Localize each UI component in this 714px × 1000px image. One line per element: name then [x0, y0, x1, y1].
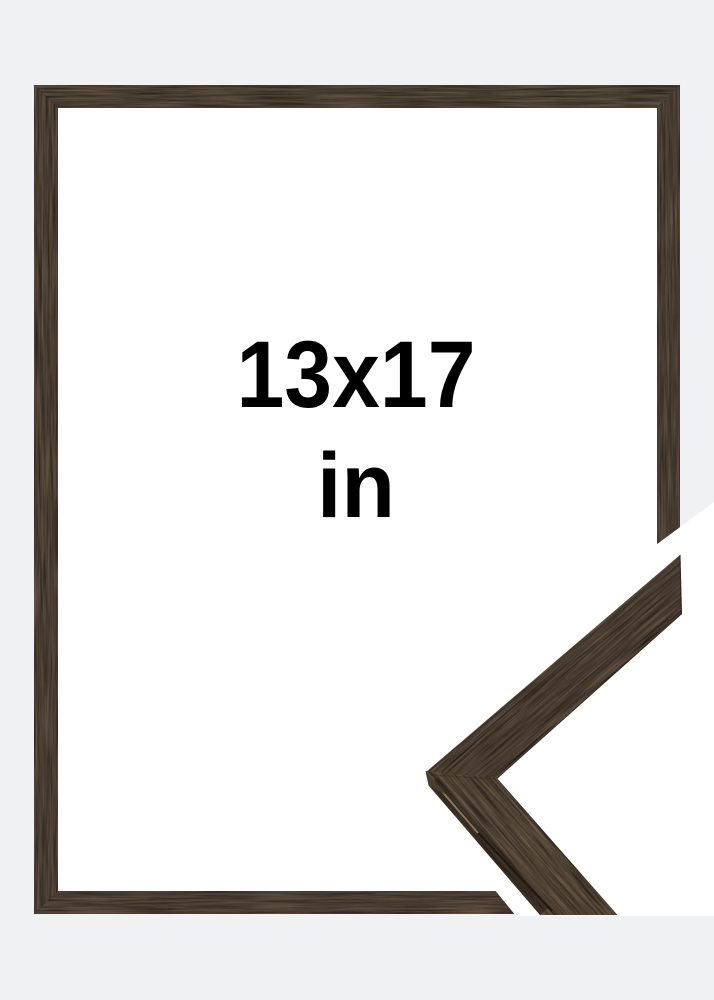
svg-text:in: in — [317, 435, 395, 537]
svg-text:13x17: 13x17 — [237, 322, 476, 428]
